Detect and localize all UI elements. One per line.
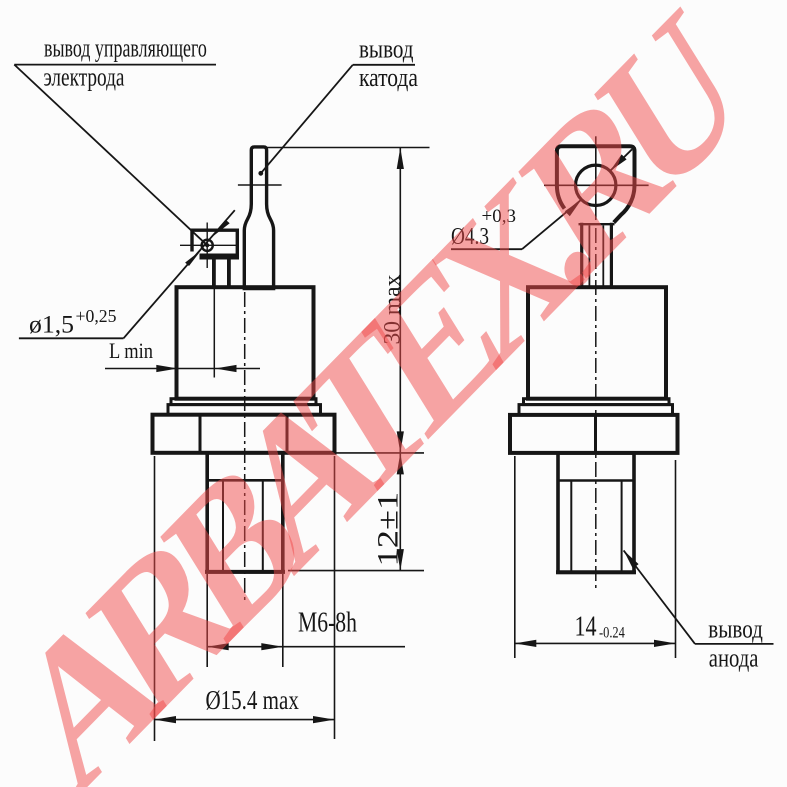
svg-text:L min: L min — [109, 340, 153, 364]
svg-text:электрода: электрода — [44, 63, 125, 91]
svg-text:+0,25: +0,25 — [76, 306, 117, 326]
svg-text:ø1,5: ø1,5 — [29, 310, 74, 339]
svg-text:вывод: вывод — [708, 616, 763, 645]
svg-text:катода: катода — [359, 64, 418, 92]
svg-text:вывод: вывод — [359, 36, 413, 65]
svg-text:анода: анода — [709, 644, 759, 673]
svg-text:-0.24: -0.24 — [599, 624, 625, 642]
svg-text:вывод управляющего: вывод управляющего — [44, 33, 207, 62]
svg-text:14: 14 — [575, 610, 597, 643]
